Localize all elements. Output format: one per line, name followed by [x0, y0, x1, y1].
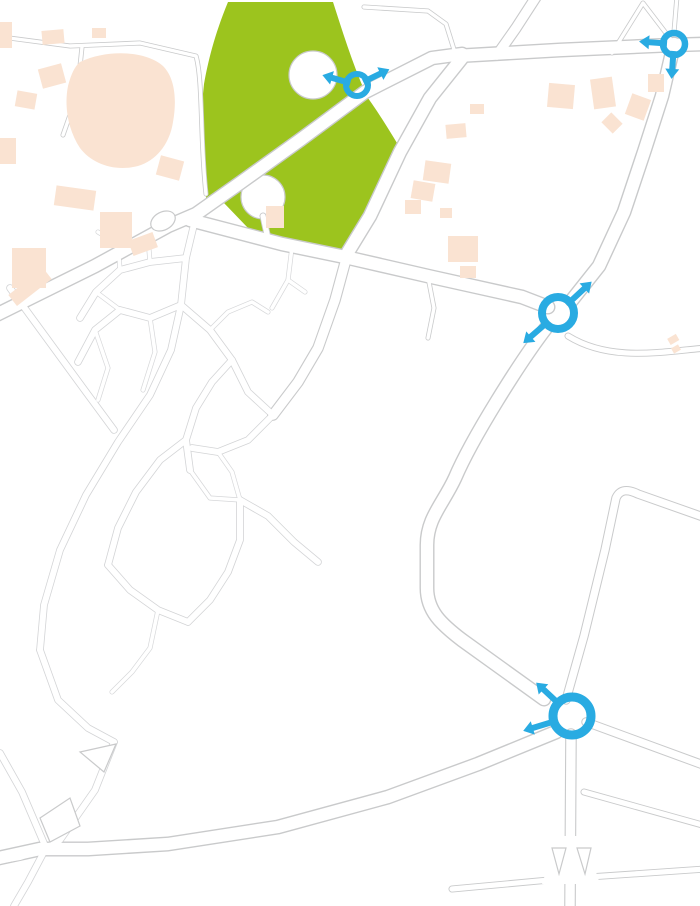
- building-footprint: [445, 123, 466, 139]
- road-surface-segment: [190, 220, 548, 307]
- road-casing-segment: [427, 328, 546, 699]
- building-footprint: [100, 212, 132, 248]
- road-surface-segment: [218, 452, 240, 500]
- building-footprint: [547, 83, 575, 109]
- map-canvas: [0, 0, 700, 906]
- building-footprint: [0, 138, 16, 164]
- road-surface-segment: [364, 7, 456, 56]
- road-surface-segment: [96, 292, 120, 310]
- detour-map: [0, 0, 700, 906]
- road-surface-segment: [586, 722, 700, 766]
- building-footprint: [92, 28, 106, 38]
- building-footprint: [625, 93, 651, 121]
- road-surface-segment: [210, 302, 268, 330]
- building-footprint: [156, 155, 184, 181]
- building-footprint: [38, 63, 66, 89]
- road-casing-segment: [364, 7, 456, 56]
- building-footprint: [67, 53, 175, 168]
- road-surface-segment: [112, 610, 158, 692]
- road-casing-segment: [108, 565, 188, 622]
- building-footprint: [266, 206, 284, 228]
- building-footprint: [448, 236, 478, 262]
- road-surface-segment: [428, 277, 434, 338]
- road-surface-segment: [95, 330, 108, 400]
- road-surface-segment: [40, 650, 114, 742]
- d210-north-roundabout: [519, 277, 597, 349]
- building-footprint: [460, 266, 476, 278]
- traffic-island: [80, 744, 116, 772]
- building-footprint: [440, 208, 452, 218]
- road-surface-segment: [0, 753, 46, 848]
- building-footprint: [411, 180, 436, 202]
- traffic-island: [40, 798, 80, 842]
- building-footprint: [423, 160, 452, 183]
- road-surface-segment: [427, 328, 546, 699]
- building-footprint: [667, 334, 679, 345]
- road-surface-segment: [188, 500, 240, 622]
- road-casing-segment: [40, 650, 114, 742]
- road-casing-segment: [108, 440, 186, 565]
- road-casing-segment: [112, 610, 158, 692]
- building-footprint: [41, 29, 64, 45]
- building-footprint: [590, 77, 616, 110]
- building-footprint: [405, 200, 421, 214]
- building-footprint: [648, 74, 664, 92]
- road-casing-segment: [566, 491, 700, 700]
- road-surface-segment: [288, 280, 305, 292]
- building-footprint: [0, 22, 12, 48]
- building-footprint: [470, 104, 484, 114]
- road-surface-segment: [568, 336, 700, 353]
- road-surface-segment: [108, 440, 186, 565]
- building-footprint: [601, 112, 622, 133]
- road-surface-segment: [566, 491, 700, 700]
- road-surface-segment: [10, 288, 114, 430]
- building-footprint: [15, 90, 37, 109]
- road-surface-segment: [240, 500, 318, 562]
- building-footprint: [128, 232, 158, 256]
- road-surface-segment: [584, 792, 700, 826]
- building-footprint: [54, 185, 96, 210]
